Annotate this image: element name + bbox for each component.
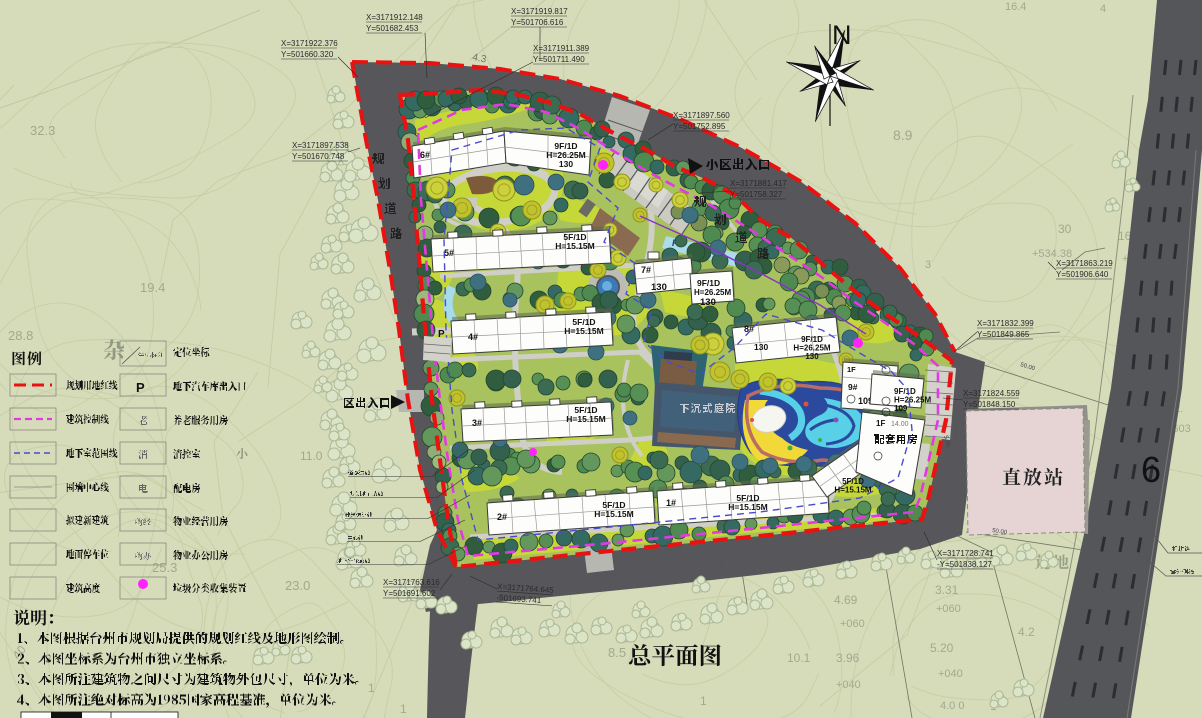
svg-text:130: 130 xyxy=(651,282,667,293)
svg-text:9F/1D: 9F/1D xyxy=(697,278,720,288)
svg-text:19.4: 19.4 xyxy=(140,280,165,295)
svg-text:9.00: 9.00 xyxy=(716,560,724,574)
svg-text:N: N xyxy=(832,20,852,50)
svg-text:+060: +060 xyxy=(936,603,961,615)
svg-text:1: 1 xyxy=(368,681,375,695)
svg-text:H=26.25M: H=26.25M xyxy=(694,288,731,297)
svg-text:X=3171897.560: X=3171897.560 xyxy=(673,111,730,120)
svg-text:4.69: 4.69 xyxy=(834,593,858,607)
svg-text:32.3: 32.3 xyxy=(30,123,55,138)
svg-text:8.5: 8.5 xyxy=(608,645,626,660)
svg-text:X=3171911.389: X=3171911.389 xyxy=(533,44,590,53)
svg-text:1#: 1# xyxy=(666,498,676,508)
svg-text:11.0: 11.0 xyxy=(300,449,323,463)
svg-text:X=3171912.148: X=3171912.148 xyxy=(366,13,423,22)
svg-text:P: P xyxy=(438,329,445,340)
svg-text:6: 6 xyxy=(1141,449,1161,490)
svg-text:-Y=501838.127: -Y=501838.127 xyxy=(937,560,992,569)
svg-text:4.2: 4.2 xyxy=(1018,625,1035,639)
svg-text:1F: 1F xyxy=(876,419,885,428)
svg-text:Y=501711.490: Y=501711.490 xyxy=(533,55,585,64)
svg-text:+040: +040 xyxy=(836,679,861,691)
svg-text:X=3171922.376: X=3171922.376 xyxy=(281,39,338,48)
svg-text:+040: +040 xyxy=(938,668,963,680)
svg-text:Y=501848.150: Y=501848.150 xyxy=(963,400,1016,409)
svg-text:X=3171919.817: X=3171919.817 xyxy=(511,7,568,16)
svg-text:X=3171763.616: X=3171763.616 xyxy=(383,578,440,587)
svg-text:Y=501670.748: Y=501670.748 xyxy=(292,152,345,161)
svg-text:14.00: 14.00 xyxy=(891,421,909,428)
svg-text:2#: 2# xyxy=(497,512,507,522)
svg-text:X=3171897.538: X=3171897.538 xyxy=(292,141,349,150)
svg-text:4.0 0: 4.0 0 xyxy=(940,700,964,712)
svg-text:5.20: 5.20 xyxy=(930,641,954,655)
svg-text:5#: 5# xyxy=(444,248,454,258)
svg-text:9#: 9# xyxy=(848,382,858,392)
svg-text:1F: 1F xyxy=(847,365,856,374)
svg-text:10.1: 10.1 xyxy=(787,651,811,665)
svg-text:Y=501849.865: Y=501849.865 xyxy=(977,330,1030,339)
svg-text:3.96: 3.96 xyxy=(836,651,860,665)
svg-text:1: 1 xyxy=(400,702,407,716)
svg-text:1: 1 xyxy=(700,694,707,708)
svg-text:+060: +060 xyxy=(840,618,865,630)
svg-text:X=3171863.219: X=3171863.219 xyxy=(1056,259,1113,268)
svg-text:23.0: 23.0 xyxy=(285,578,310,593)
svg-text:Y=501706.616: Y=501706.616 xyxy=(511,18,564,27)
svg-text:28.8: 28.8 xyxy=(8,328,33,343)
svg-text:3: 3 xyxy=(45,652,52,666)
svg-text:25.3: 25.3 xyxy=(152,560,177,575)
svg-text:Y=501660.320: Y=501660.320 xyxy=(281,50,334,59)
svg-text:Y=501752.895: Y=501752.895 xyxy=(673,122,726,131)
svg-text:4: 4 xyxy=(1100,3,1106,15)
svg-text:Y=501691.602: Y=501691.602 xyxy=(383,589,436,598)
svg-text:6#: 6# xyxy=(420,150,430,160)
svg-text:Y=501682.453: Y=501682.453 xyxy=(366,24,419,33)
svg-text:Y=501906.640: Y=501906.640 xyxy=(1056,270,1109,279)
svg-text:X=3171881.417: X=3171881.417 xyxy=(730,179,787,188)
svg-text:P: P xyxy=(136,380,145,395)
svg-text:8.9: 8.9 xyxy=(893,127,913,143)
svg-text:7#: 7# xyxy=(641,265,651,275)
svg-text:30: 30 xyxy=(1058,222,1072,236)
svg-text:130: 130 xyxy=(754,342,768,352)
svg-text:16.4: 16.4 xyxy=(1005,1,1026,13)
svg-text:X=3171728.741: X=3171728.741 xyxy=(937,549,994,558)
svg-text:4#: 4# xyxy=(468,332,478,342)
svg-text:Y=501758.327: Y=501758.327 xyxy=(730,190,783,199)
svg-text:3.31: 3.31 xyxy=(935,583,959,597)
svg-text:130: 130 xyxy=(700,297,716,308)
svg-text:3: 3 xyxy=(925,259,931,271)
svg-text:3#: 3# xyxy=(472,418,482,428)
svg-text:X=3171824.559: X=3171824.559 xyxy=(963,389,1020,398)
svg-text:X=3171832.399: X=3171832.399 xyxy=(977,319,1034,328)
